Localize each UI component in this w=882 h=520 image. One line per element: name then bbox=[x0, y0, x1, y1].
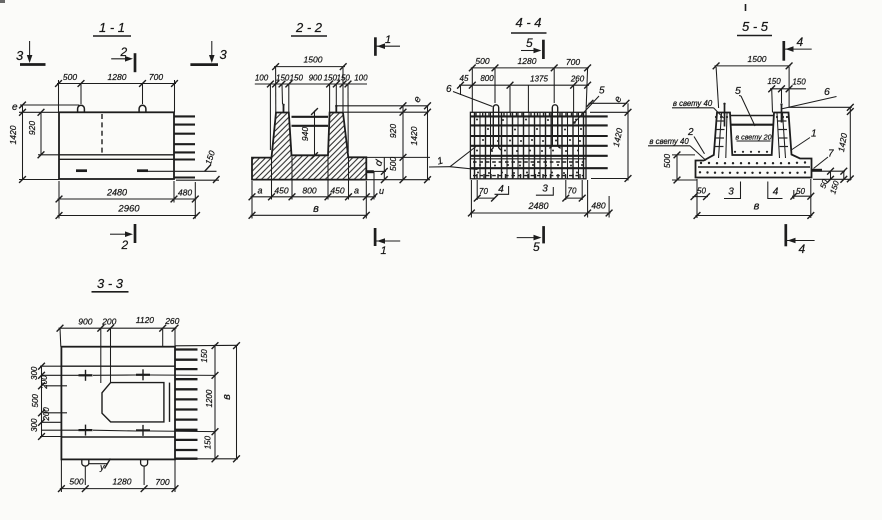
svg-text:в свету 40: в свету 40 bbox=[673, 99, 713, 108]
svg-text:1: 1 bbox=[381, 245, 387, 257]
svg-text:300: 300 bbox=[30, 418, 39, 432]
svg-text:7: 7 bbox=[828, 149, 834, 160]
svg-text:4: 4 bbox=[498, 184, 504, 195]
svg-text:150: 150 bbox=[276, 74, 290, 83]
svg-text:3 - 3: 3 - 3 bbox=[97, 276, 124, 291]
svg-text:1420: 1420 bbox=[409, 126, 419, 145]
svg-text:у: у bbox=[99, 462, 105, 472]
svg-text:4 - 4: 4 - 4 bbox=[515, 15, 541, 30]
svg-text:150: 150 bbox=[792, 78, 806, 87]
svg-text:940: 940 bbox=[300, 127, 310, 141]
svg-text:в: в bbox=[313, 203, 319, 215]
svg-text:70: 70 bbox=[568, 187, 577, 196]
svg-text:4: 4 bbox=[799, 242, 806, 256]
svg-text:100: 100 bbox=[354, 74, 368, 83]
svg-text:200: 200 bbox=[42, 407, 51, 422]
svg-text:2: 2 bbox=[687, 127, 694, 138]
svg-text:4: 4 bbox=[773, 187, 779, 198]
svg-text:150: 150 bbox=[204, 435, 213, 449]
svg-text:5: 5 bbox=[526, 36, 533, 50]
svg-text:300: 300 bbox=[30, 366, 39, 380]
svg-text:2480: 2480 bbox=[527, 201, 548, 211]
svg-text:260: 260 bbox=[164, 316, 179, 326]
svg-text:4: 4 bbox=[797, 35, 804, 49]
svg-text:3: 3 bbox=[728, 187, 734, 198]
svg-text:900: 900 bbox=[78, 317, 92, 327]
svg-text:700: 700 bbox=[155, 477, 169, 487]
svg-text:5 - 5: 5 - 5 bbox=[742, 19, 769, 34]
svg-text:450: 450 bbox=[274, 186, 288, 196]
svg-text:150: 150 bbox=[290, 74, 304, 83]
svg-text:5: 5 bbox=[735, 85, 741, 97]
svg-text:6: 6 bbox=[824, 86, 830, 98]
svg-text:2 - 2: 2 - 2 bbox=[295, 20, 323, 35]
svg-text:150: 150 bbox=[767, 77, 781, 86]
svg-text:1200: 1200 bbox=[205, 389, 214, 407]
svg-text:920: 920 bbox=[27, 121, 37, 135]
svg-text:900: 900 bbox=[309, 74, 323, 83]
svg-text:500: 500 bbox=[388, 157, 398, 171]
svg-text:3: 3 bbox=[542, 184, 548, 195]
svg-text:920: 920 bbox=[388, 124, 398, 138]
svg-text:480: 480 bbox=[591, 201, 605, 211]
svg-text:и: и bbox=[379, 186, 384, 196]
svg-text:500: 500 bbox=[63, 72, 77, 82]
svg-text:200: 200 bbox=[40, 375, 49, 390]
svg-text:45: 45 bbox=[460, 74, 469, 83]
svg-text:1280: 1280 bbox=[113, 477, 132, 487]
svg-text:500: 500 bbox=[69, 477, 83, 487]
svg-text:2: 2 bbox=[121, 238, 129, 252]
svg-text:480: 480 bbox=[178, 188, 192, 198]
svg-text:5: 5 bbox=[599, 86, 605, 97]
svg-text:50: 50 bbox=[796, 187, 805, 196]
svg-text:150: 150 bbox=[200, 349, 209, 363]
svg-text:2960: 2960 bbox=[117, 204, 140, 215]
svg-text:1375: 1375 bbox=[530, 75, 548, 84]
svg-text:1 - 1: 1 - 1 bbox=[99, 20, 125, 35]
svg-text:2480: 2480 bbox=[106, 188, 127, 198]
svg-text:a: a bbox=[354, 186, 359, 196]
svg-text:500: 500 bbox=[662, 154, 672, 168]
svg-text:в: в bbox=[221, 394, 233, 400]
svg-text:1420: 1420 bbox=[8, 125, 18, 144]
svg-text:1280: 1280 bbox=[108, 72, 127, 82]
svg-text:1: 1 bbox=[811, 129, 817, 140]
svg-text:в свету 20: в свету 20 bbox=[735, 133, 771, 142]
svg-text:3: 3 bbox=[220, 47, 228, 62]
svg-text:1500: 1500 bbox=[748, 54, 767, 64]
svg-text:800: 800 bbox=[480, 74, 494, 83]
svg-text:1500: 1500 bbox=[304, 55, 323, 65]
svg-text:1280: 1280 bbox=[518, 56, 537, 66]
svg-text:1120: 1120 bbox=[136, 315, 155, 325]
svg-text:200: 200 bbox=[101, 317, 116, 327]
svg-text:50: 50 bbox=[697, 187, 706, 196]
svg-text:e: e bbox=[12, 102, 18, 113]
svg-text:700: 700 bbox=[566, 57, 580, 67]
svg-text:1: 1 bbox=[385, 34, 391, 46]
svg-text:6: 6 bbox=[446, 84, 452, 95]
svg-text:800: 800 bbox=[302, 186, 316, 196]
svg-text:3: 3 bbox=[16, 48, 24, 63]
svg-text:5: 5 bbox=[533, 240, 540, 254]
svg-text:500: 500 bbox=[475, 56, 489, 66]
svg-text:260: 260 bbox=[570, 75, 585, 84]
svg-text:100: 100 bbox=[255, 74, 269, 83]
svg-text:70: 70 bbox=[479, 187, 488, 196]
svg-text:500: 500 bbox=[31, 394, 40, 408]
svg-text:450: 450 bbox=[330, 186, 344, 196]
svg-text:150: 150 bbox=[324, 74, 338, 83]
svg-text:700: 700 bbox=[149, 72, 163, 82]
svg-text:в: в bbox=[754, 201, 760, 213]
svg-text:в свету 40: в свету 40 bbox=[649, 137, 689, 146]
svg-text:a: a bbox=[257, 186, 262, 196]
